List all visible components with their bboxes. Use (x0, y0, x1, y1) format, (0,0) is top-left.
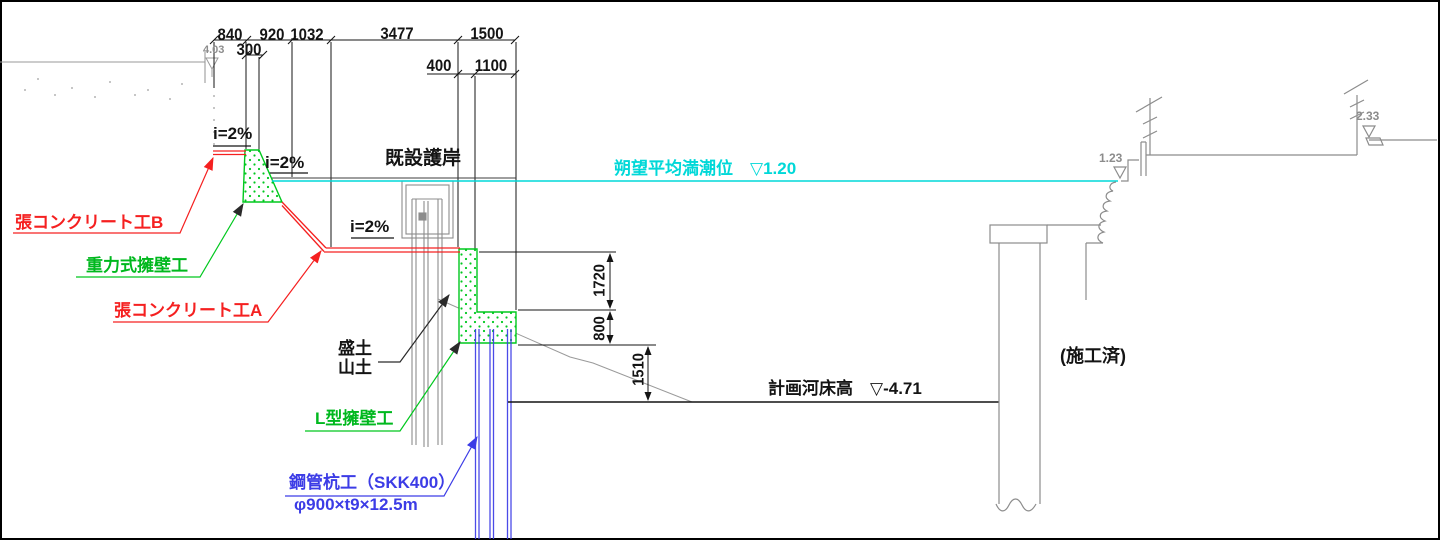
label-steel-pipe-pile: 鋼管杭工（SKK400） (289, 474, 455, 492)
label-fill-soil: 盛土 (338, 340, 372, 358)
slope-label-1: i=2% (213, 125, 252, 143)
label-gravity-wall: 重力式擁壁工 (86, 257, 188, 275)
l-wall-shape (459, 249, 516, 343)
level-symbol-4-03 (206, 58, 218, 77)
dim-3477: 3477 (376, 25, 418, 43)
riverbed-level-text: 計画河床高 ▽-4.71 (768, 380, 922, 398)
completed-section-structure (990, 80, 1437, 511)
slope-label-3: i=2% (350, 218, 389, 236)
label-slab-concrete-a: 張コンクリート工A (114, 302, 262, 320)
dim-800: 800 (593, 301, 610, 356)
dim-1100: 1100 (470, 57, 512, 75)
dim-300: 300 (235, 41, 263, 59)
elevation-4-03: 4.03 (203, 45, 224, 57)
slope-label-2: i=2% (265, 154, 304, 172)
tide-level-text: 朔望平均満潮位 ▽1.20 (614, 160, 796, 178)
label-steel-pipe-pile-spec: φ900×t9×12.5m (294, 496, 418, 514)
dim-1510: 1510 (632, 342, 649, 397)
drawing-frame (1, 1, 1439, 539)
cross-section-drawing: 840 920 1032 3477 1500 300 400 1100 1720… (0, 0, 1440, 540)
dim-400: 400 (425, 57, 453, 75)
ground-texture-dots (24, 78, 215, 145)
dim-1500: 1500 (466, 25, 508, 43)
dim-1032: 1032 (288, 26, 327, 44)
linework-svg (0, 0, 1440, 540)
label-completed: (施工済) (1060, 347, 1126, 366)
label-mountain-soil: 山土 (338, 359, 372, 377)
left-ground-lines (0, 52, 205, 83)
existing-revetment-structure (402, 181, 453, 447)
label-existing-revetment: 既設護岸 (385, 149, 461, 169)
label-l-wall: L型擁壁工 (315, 410, 393, 428)
elevation-2-33: 2.33 (1356, 110, 1379, 123)
elevation-1-23: 1.23 (1099, 152, 1122, 165)
steel-pipe-pile-lines (476, 329, 512, 539)
label-slab-concrete-b: 張コンクリート工B (15, 214, 163, 232)
dim-1720: 1720 (593, 253, 610, 308)
